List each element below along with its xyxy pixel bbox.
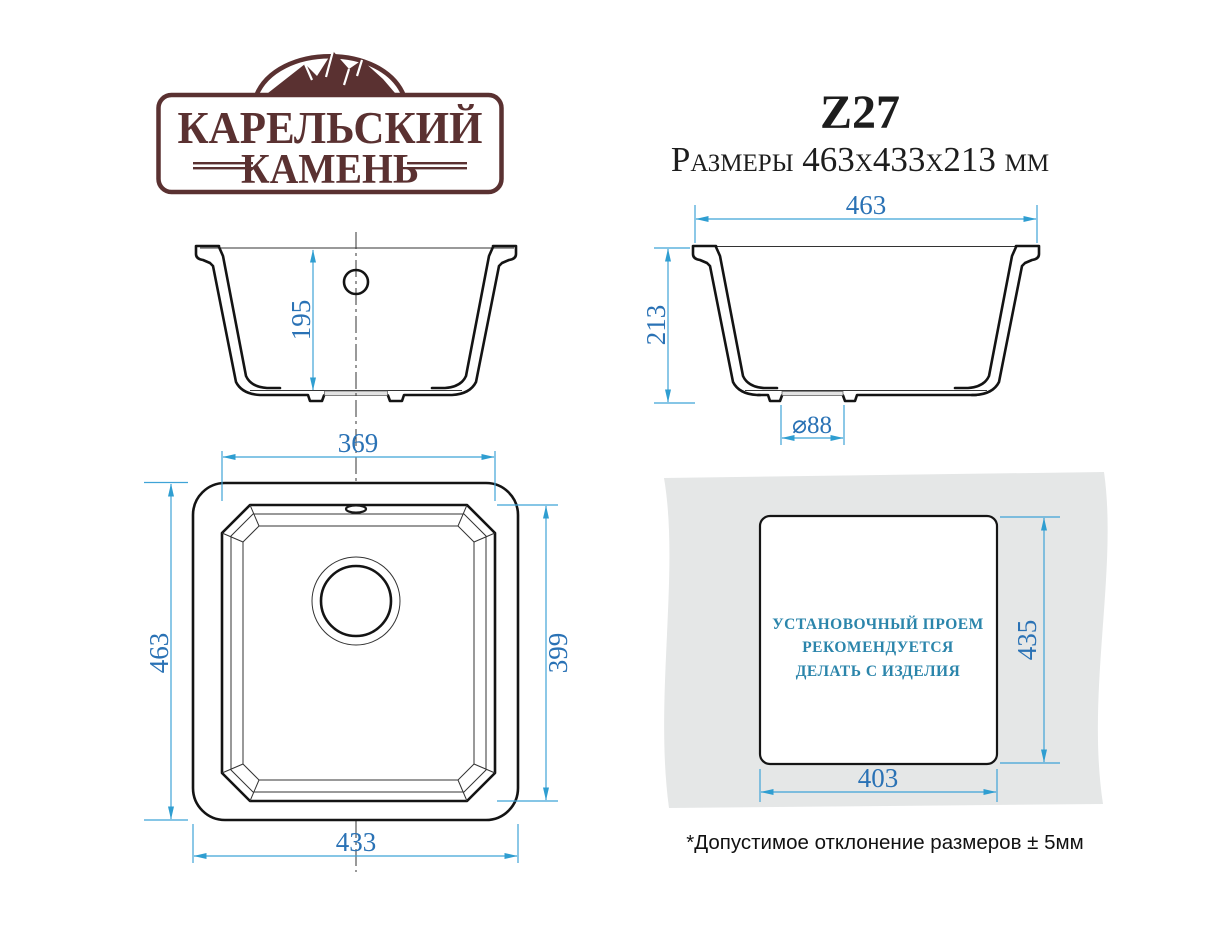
height-dimension-label: 213	[641, 305, 671, 346]
sink-profile-right-half	[955, 246, 1039, 395]
bowl-length-dimension-label: 399	[543, 633, 573, 674]
cutout-note-line1: УСТАНОВОЧНЫЙ ПРОЕМ	[772, 616, 984, 633]
drawing-sheet: КАРЕЛЬСКИЙ КАМЕНЬ Z27 Размеры 463x433x21…	[0, 0, 1220, 933]
depth-dimension-label: 195	[286, 300, 316, 341]
model-number: Z27	[760, 85, 960, 140]
drain-recess-strip	[782, 392, 843, 396]
bowl-width-dimension-label: 369	[338, 428, 379, 458]
sink-profile-left-half	[196, 246, 356, 401]
cutout-note-line2: РЕКОМЕНДУЕТСЯ	[802, 639, 954, 656]
cutout-note-line3: ДЕЛАТЬ С ИЗДЕЛИЯ	[796, 663, 961, 680]
side-section-view: 463 213 ⌀88	[635, 195, 1070, 455]
sink-profile-left-half	[693, 246, 777, 395]
width-dimension-label: 463	[846, 195, 887, 220]
brand-name-line2: КАМЕНЬ	[241, 147, 419, 193]
front-section-view: 195	[180, 225, 540, 440]
sink-profile-right-half	[356, 246, 516, 401]
cutout-width-dimension-label: 403	[858, 763, 899, 793]
plan-view: 369 463 399 433	[130, 425, 580, 875]
cutout-height-dimension-label: 435	[1012, 620, 1042, 661]
tolerance-footnote: *Допустимое отклонение размеров ± 5мм	[640, 831, 1130, 855]
width-dimension-label: 433	[336, 827, 377, 857]
length-dimension-label: 463	[144, 633, 174, 674]
overall-dimensions-title: Размеры 463x433x213 мм	[630, 140, 1090, 180]
drain-dimension-label: ⌀88	[792, 412, 832, 439]
cutout-view: УСТАНОВОЧНЫЙ ПРОЕМ РЕКОМЕНДУЕТСЯ ДЕЛАТЬ …	[640, 460, 1120, 820]
bottom-profile	[758, 395, 976, 401]
brand-logo: КАРЕЛЬСКИЙ КАМЕНЬ	[155, 35, 505, 200]
brand-name-line1: КАРЕЛЬСКИЙ	[178, 102, 483, 153]
